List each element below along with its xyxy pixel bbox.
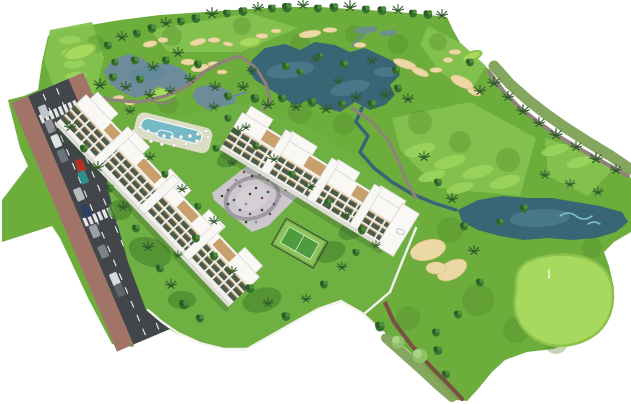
rough-patch (408, 110, 432, 134)
rough-patch (582, 238, 602, 258)
pedestrian (261, 197, 264, 200)
pool-umbrella (188, 134, 192, 138)
putting-green-large (514, 255, 613, 346)
pool-umbrella (196, 132, 200, 136)
pool-umbrella (162, 134, 166, 138)
pedestrian (269, 213, 272, 216)
sand-bunker (271, 29, 281, 33)
pedestrian (255, 187, 258, 190)
rough-patch (437, 217, 463, 243)
pool-umbrella (172, 143, 176, 147)
pedestrian (245, 221, 248, 224)
sand-bunker (217, 70, 227, 74)
rough-patch (462, 284, 494, 316)
sand-bunker (354, 43, 366, 48)
pedestrian (221, 195, 224, 198)
sand-bunker (158, 38, 168, 43)
pedestrian (279, 195, 282, 198)
pedestrian (267, 191, 270, 194)
pool-umbrella (184, 142, 188, 146)
sand-bunker (208, 38, 220, 43)
pedestrian (227, 203, 230, 206)
pool-umbrella (179, 135, 183, 139)
pedestrian (235, 179, 238, 182)
sand-bunker (430, 68, 442, 73)
pool-umbrella (160, 142, 164, 146)
pedestrian (249, 213, 252, 216)
pedestrian (239, 209, 242, 212)
pool-umbrella (154, 132, 158, 136)
pedestrian (255, 221, 258, 224)
sand-bunker (449, 50, 461, 55)
rough-patch (333, 113, 355, 135)
pedestrian (245, 203, 248, 206)
rough-patch (429, 33, 447, 51)
rough-patch (449, 131, 471, 153)
sand-bunker (323, 28, 337, 33)
pool-umbrella (195, 139, 199, 143)
sand-bunker (426, 262, 446, 274)
pedestrian (239, 185, 242, 188)
tree (375, 322, 385, 332)
rough-patch (162, 26, 182, 46)
pool-umbrella (206, 135, 210, 139)
golf-flag-base (548, 276, 550, 278)
pedestrian (233, 199, 236, 202)
rough-patch (388, 34, 408, 54)
pool-umbrella (170, 135, 174, 139)
pool-umbrella (149, 139, 153, 143)
rough-patch (496, 148, 520, 172)
rendering-canvas (0, 0, 631, 404)
pedestrian (227, 189, 230, 192)
pool-umbrella (204, 129, 208, 133)
light-tree (413, 349, 428, 364)
golf-resort-aerial-rendering (0, 0, 631, 404)
sand-bunker (443, 58, 453, 63)
pedestrian (249, 193, 252, 196)
sand-bunker (181, 59, 195, 65)
sand-bunker (256, 34, 268, 39)
light-tree (392, 336, 405, 349)
rough-patch (233, 17, 251, 35)
pedestrian (273, 203, 276, 206)
pool-umbrella (146, 129, 150, 133)
pedestrian (261, 209, 264, 212)
pool-umbrella (138, 125, 142, 129)
